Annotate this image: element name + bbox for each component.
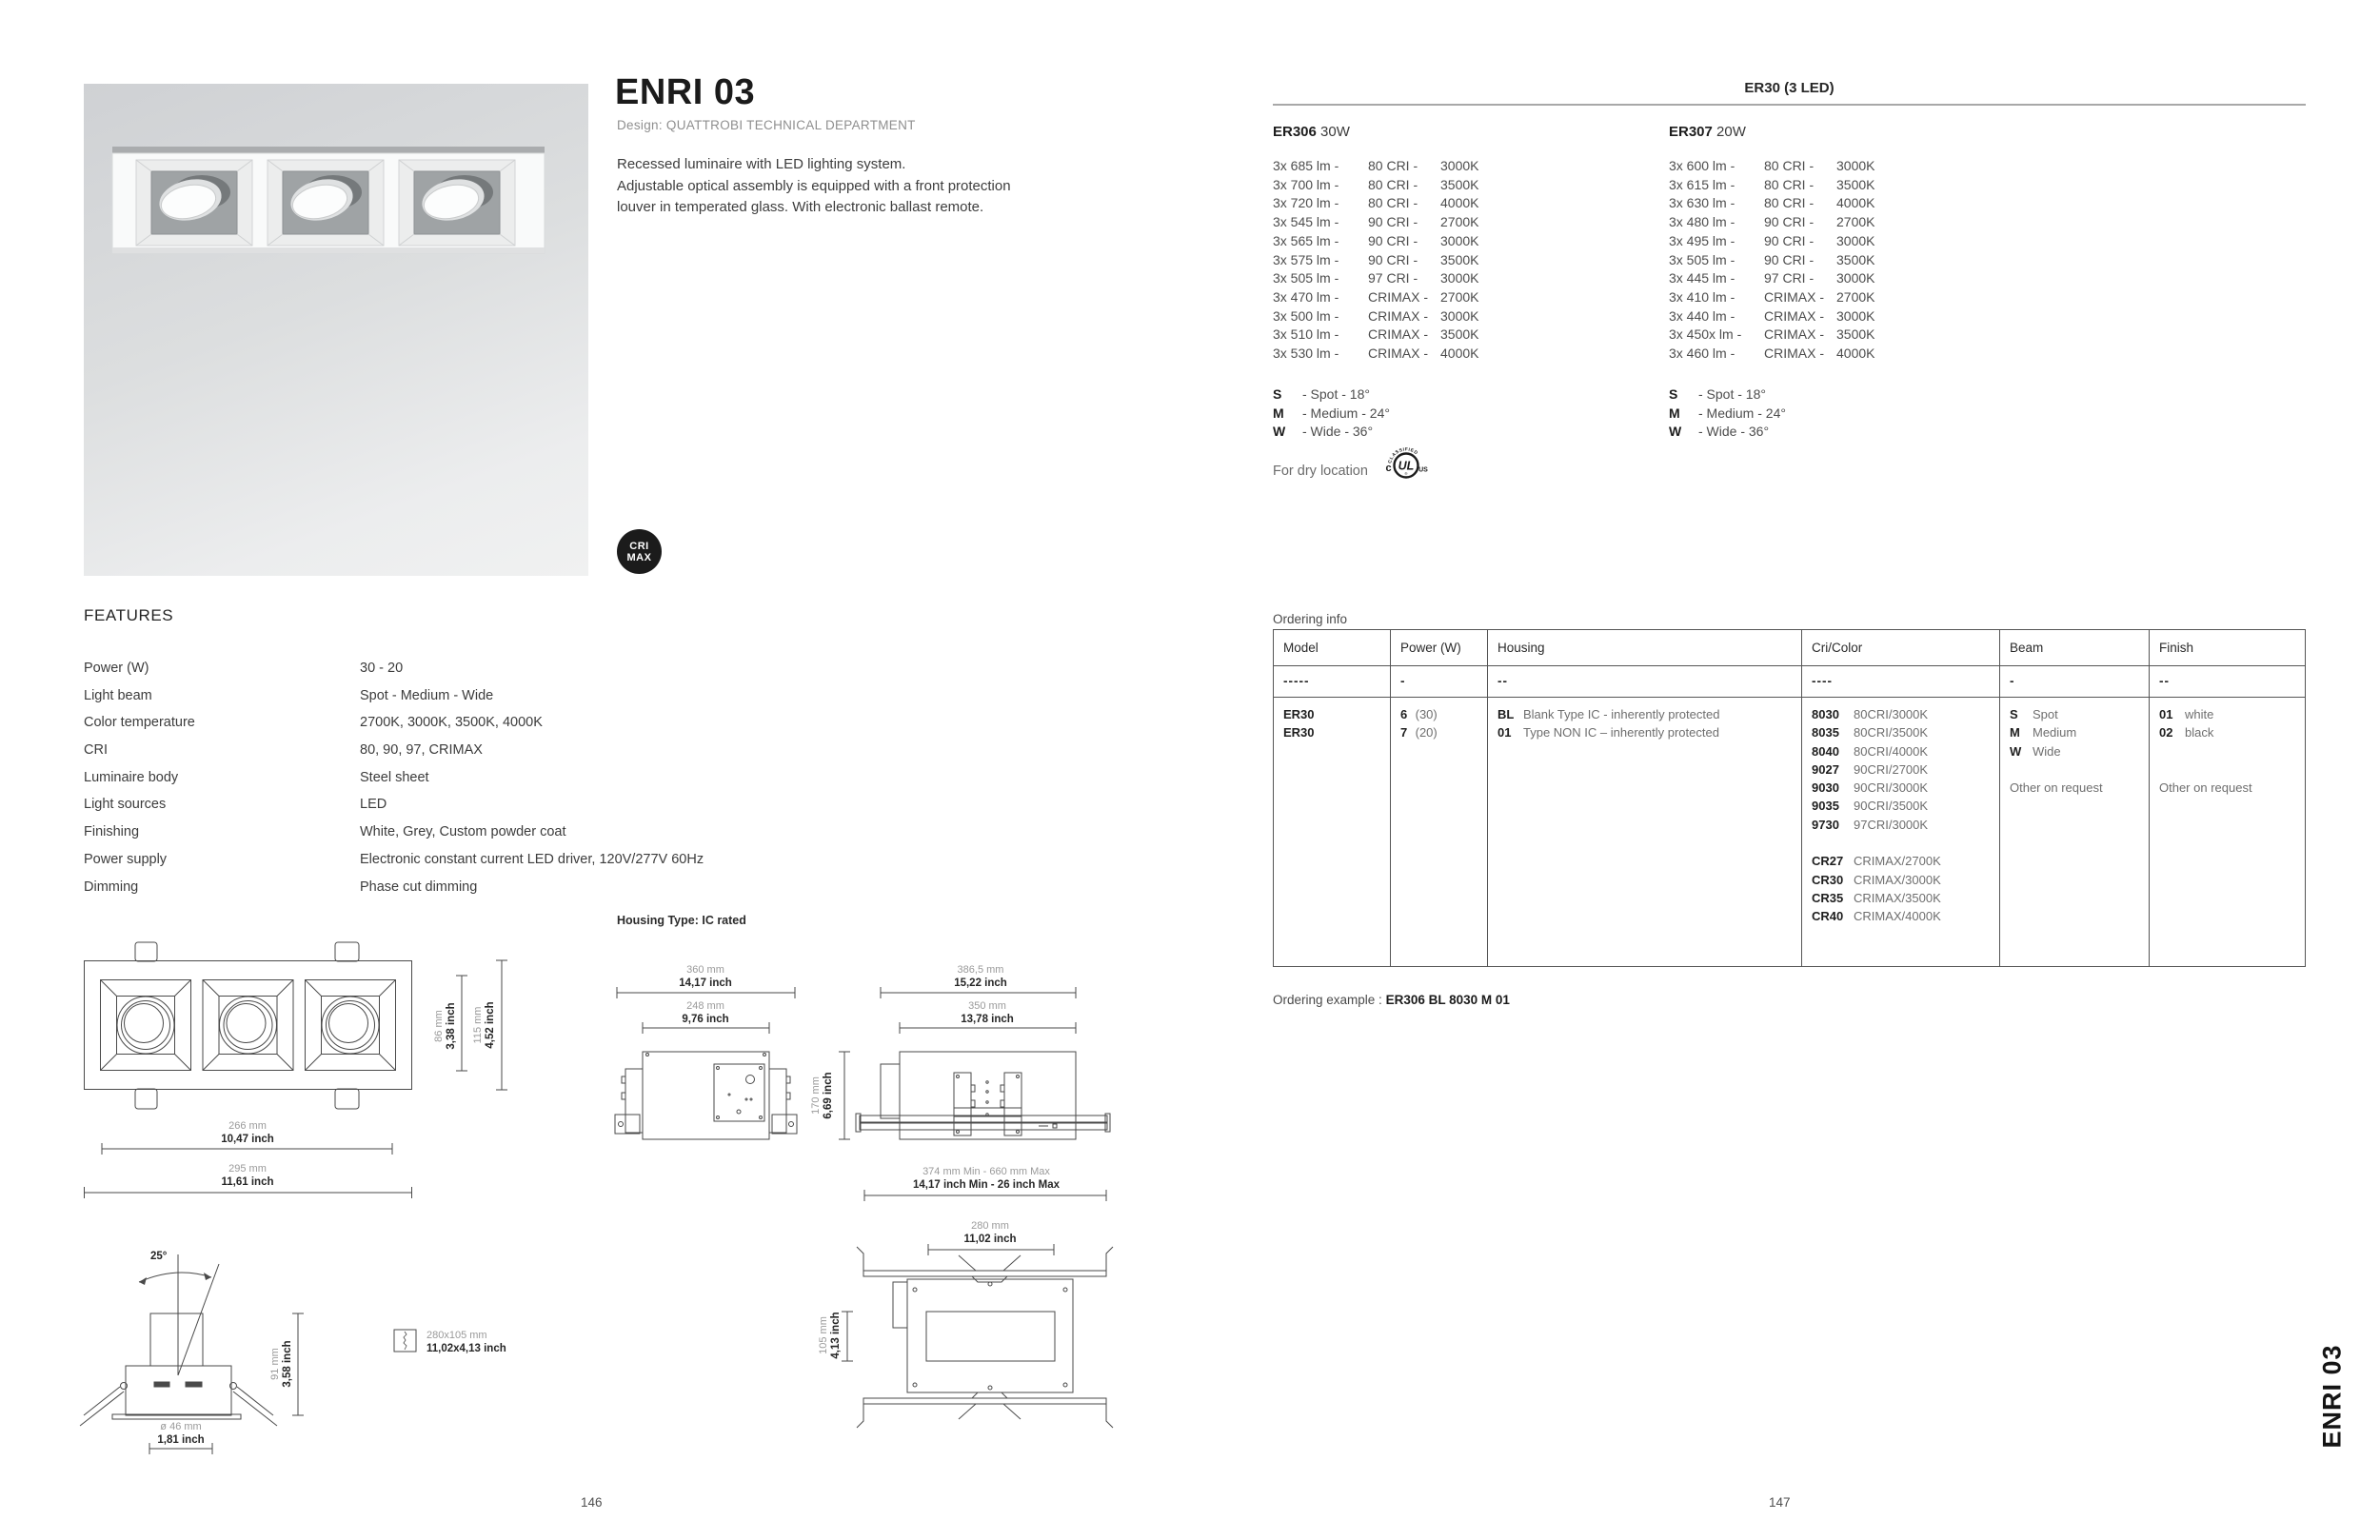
power-cell: 6 (30)7 (20) xyxy=(1391,698,1488,966)
finish-option: Other on request xyxy=(2159,780,2299,799)
output-row: 3x 495 lm - 90 CRI - 3000K xyxy=(1669,232,1874,251)
beam-key: M xyxy=(1669,405,1698,424)
output-row: 3x 685 lm - 80 CRI - 3000K xyxy=(1273,157,1478,176)
product-photo xyxy=(84,84,588,576)
cri-value: CRIMAX - xyxy=(1368,345,1440,364)
output-row: 3x 510 lm - CRIMAX - 3500K xyxy=(1273,326,1478,345)
cri-value: 80 CRI - xyxy=(1368,176,1440,195)
kelvin-value: 3000K xyxy=(1836,157,1874,176)
feature-value: 80, 90, 97, CRIMAX xyxy=(360,742,483,770)
feature-row: Power (W) 30 - 20 xyxy=(84,661,1017,688)
cri-value: CRIMAX - xyxy=(1764,307,1836,326)
finish-option: 01white xyxy=(2159,707,2299,725)
model-b-header: ER307 20W xyxy=(1669,124,1746,140)
kelvin-value: 2700K xyxy=(1440,288,1478,307)
bottom-view-drawing xyxy=(814,1214,1119,1437)
cri-value: 80 CRI - xyxy=(1764,176,1836,195)
kelvin-value: 3000K xyxy=(1440,232,1478,251)
kelvin-value: 3000K xyxy=(1440,269,1478,288)
ul-classified-icon: CLASSIFIED UL ® c US xyxy=(1382,440,1430,487)
housing-option: 01Type NON IC – inherently protected xyxy=(1497,725,1795,743)
model-a-power: 30W xyxy=(1317,124,1350,140)
lumen-value: 3x 700 lm - xyxy=(1273,176,1368,195)
cri-value: 90 CRI - xyxy=(1764,213,1836,232)
feature-value: LED xyxy=(360,797,387,824)
feature-label: Power (W) xyxy=(84,661,360,688)
power-option: 6 (30) xyxy=(1400,707,1481,725)
dim-86mm: 86 mm 3,38 inch xyxy=(433,1002,458,1049)
feature-value: White, Grey, Custom powder coat xyxy=(360,824,566,852)
model-b-code: ER307 xyxy=(1669,124,1713,140)
feature-row: Light beam Spot - Medium - Wide xyxy=(84,688,1017,716)
series-header: ER30 (3 LED) xyxy=(1273,80,2306,96)
kelvin-value: 4000K xyxy=(1836,345,1874,364)
description-line: Adjustable optical assembly is equipped … xyxy=(617,176,1011,198)
description-line: Recessed luminaire with LED lighting sys… xyxy=(617,154,1011,176)
beam-option: Other on request xyxy=(2010,780,2143,799)
kelvin-value: 3500K xyxy=(1440,326,1478,345)
page-number-right: 147 xyxy=(1769,1495,1791,1510)
lumen-value: 3x 505 lm - xyxy=(1669,251,1764,270)
beam-option: MMedium xyxy=(2010,725,2143,743)
output-row: 3x 630 lm - 80 CRI - 4000K xyxy=(1669,194,1874,213)
ordering-example: Ordering example : ER306 BL 8030 M 01 xyxy=(1273,993,1510,1007)
kelvin-value: 3500K xyxy=(1836,326,1874,345)
beam-row: S- Spot - 18° xyxy=(1669,385,1786,405)
description-line: louver in temperated glass. With electro… xyxy=(617,197,1011,219)
ordering-example-label: Ordering example : xyxy=(1273,993,1386,1007)
cricolor-option: 973097CRI/3000K xyxy=(1812,818,1993,836)
kelvin-value: 4000K xyxy=(1836,194,1874,213)
feature-row: Power supply Electronic constant current… xyxy=(84,852,1017,879)
col-header-beam: Beam xyxy=(2000,630,2150,666)
dim-248mm: 248 mm 9,76 inch xyxy=(682,999,728,1026)
feature-row: Light sources LED xyxy=(84,797,1017,824)
kelvin-value: 3000K xyxy=(1440,157,1478,176)
lumen-value: 3x 500 lm - xyxy=(1273,307,1368,326)
beam-row: M- Medium - 24° xyxy=(1273,405,1390,424)
housing-type-label: Housing Type: IC rated xyxy=(617,914,746,927)
section-view-drawing xyxy=(76,1237,343,1466)
lumen-value: 3x 510 lm - xyxy=(1273,326,1368,345)
lumen-value: 3x 460 lm - xyxy=(1669,345,1764,364)
output-row: 3x 530 lm - CRIMAX - 4000K xyxy=(1273,345,1478,364)
beam-desc: - Wide - 36° xyxy=(1302,424,1373,439)
lumen-value: 3x 450x lm - xyxy=(1669,326,1764,345)
dim-115mm: 115 mm 4,52 inch xyxy=(472,1001,497,1048)
feature-row: Color temperature 2700K, 3000K, 3500K, 4… xyxy=(84,715,1017,742)
kelvin-value: 2700K xyxy=(1836,288,1874,307)
model-a-header: ER306 30W xyxy=(1273,124,1350,140)
catalog-spread: ENRI 03 Design: QUATTROBI TECHNICAL DEPA… xyxy=(0,0,2380,1540)
ordering-table: Model Power (W) Housing Cri/Color Beam F… xyxy=(1273,629,2306,967)
output-row: 3x 410 lm - CRIMAX - 2700K xyxy=(1669,288,1874,307)
output-row: 3x 505 lm - 97 CRI - 3000K xyxy=(1273,269,1478,288)
lumen-value: 3x 720 lm - xyxy=(1273,194,1368,213)
feature-value: 30 - 20 xyxy=(360,661,403,688)
feature-value: Electronic constant current LED driver, … xyxy=(360,852,704,879)
dash-cell: ---- xyxy=(1802,666,2000,698)
header-rule xyxy=(1273,104,2306,106)
output-row: 3x 480 lm - 90 CRI - 2700K xyxy=(1669,213,1874,232)
cricolor-option: 803580CRI/3500K xyxy=(1812,725,1993,743)
finish-option: 02black xyxy=(2159,725,2299,743)
lumen-value: 3x 630 lm - xyxy=(1669,194,1764,213)
beam-desc: - Spot - 18° xyxy=(1698,386,1766,402)
features-list: Power (W) 30 - 20 Light beam Spot - Medi… xyxy=(84,661,1017,906)
product-description: Recessed luminaire with LED lighting sys… xyxy=(617,154,1011,219)
lumen-value: 3x 530 lm - xyxy=(1273,345,1368,364)
features-heading: FEATURES xyxy=(84,606,173,625)
feature-value: Phase cut dimming xyxy=(360,879,477,907)
finish-option xyxy=(2159,762,2299,780)
cutout-icon xyxy=(393,1329,418,1353)
ordering-info-label: Ordering info xyxy=(1273,612,1347,626)
side-tab-label: ENRI 03 xyxy=(2318,1344,2348,1448)
output-row: 3x 440 lm - CRIMAX - 3000K xyxy=(1669,307,1874,326)
design-credit: Design: QUATTROBI TECHNICAL DEPARTMENT xyxy=(617,118,916,132)
dry-location-note: For dry location xyxy=(1273,464,1368,479)
dim-telescopic-range: 374 mm Min - 660 mm Max 14,17 inch Min -… xyxy=(913,1165,1060,1192)
cricolor-option: 903090CRI/3000K xyxy=(1812,780,1993,799)
cri-value: 90 CRI - xyxy=(1368,251,1440,270)
output-row: 3x 700 lm - 80 CRI - 3500K xyxy=(1273,176,1478,195)
ordering-example-value: ER306 BL 8030 M 01 xyxy=(1386,993,1510,1007)
finish-option xyxy=(2159,744,2299,762)
dash-cell: ----- xyxy=(1274,666,1391,698)
output-row: 3x 470 lm - CRIMAX - 2700K xyxy=(1273,288,1478,307)
dim-360mm: 360 mm 14,17 inch xyxy=(679,963,732,990)
cricolor-option: 804080CRI/4000K xyxy=(1812,744,1993,762)
col-header-cricolor: Cri/Color xyxy=(1802,630,2000,666)
cri-value: CRIMAX - xyxy=(1368,307,1440,326)
beam-desc: - Medium - 24° xyxy=(1302,405,1390,421)
cri-value: CRIMAX - xyxy=(1764,345,1836,364)
cri-value: 90 CRI - xyxy=(1368,213,1440,232)
housing-option: BLBlank Type IC - inherently protected xyxy=(1497,707,1795,725)
housing-cell: BLBlank Type IC - inherently protected01… xyxy=(1488,698,1802,966)
dim-105mm: 105 mm 4,13 inch xyxy=(818,1312,843,1358)
svg-text:c: c xyxy=(1385,463,1391,474)
kelvin-value: 3000K xyxy=(1440,307,1478,326)
housing-top-drawing xyxy=(609,947,866,1152)
feature-label: Color temperature xyxy=(84,715,360,742)
dim-91mm: 91 mm 3,58 inch xyxy=(269,1340,294,1387)
lumen-value: 3x 445 lm - xyxy=(1669,269,1764,288)
kelvin-value: 3500K xyxy=(1836,251,1874,270)
lumen-value: 3x 615 lm - xyxy=(1669,176,1764,195)
cricolor-option: 902790CRI/2700K xyxy=(1812,762,1993,780)
beam-legend-b: S- Spot - 18° M- Medium - 24° W- Wide - … xyxy=(1669,385,1786,442)
svg-text:®: ® xyxy=(1405,471,1408,476)
lumen-value: 3x 440 lm - xyxy=(1669,307,1764,326)
feature-value: Spot - Medium - Wide xyxy=(360,688,493,716)
kelvin-value: 4000K xyxy=(1440,345,1478,364)
beam-row: S- Spot - 18° xyxy=(1273,385,1390,405)
beam-option: WWide xyxy=(2010,744,2143,762)
model-b-outputs: 3x 600 lm - 80 CRI - 3000K 3x 615 lm - 8… xyxy=(1669,157,1874,364)
beam-row: M- Medium - 24° xyxy=(1669,405,1786,424)
col-header-power: Power (W) xyxy=(1391,630,1488,666)
recessed-luminaire-image xyxy=(84,84,588,576)
dash-cell: - xyxy=(2000,666,2150,698)
dim-350mm: 350 mm 13,78 inch xyxy=(961,999,1014,1026)
kelvin-value: 2700K xyxy=(1836,213,1874,232)
lumen-value: 3x 480 lm - xyxy=(1669,213,1764,232)
cri-value: 90 CRI - xyxy=(1764,232,1836,251)
spot-cells xyxy=(136,160,515,246)
kelvin-value: 3000K xyxy=(1836,307,1874,326)
output-row: 3x 445 lm - 97 CRI - 3000K xyxy=(1669,269,1874,288)
kelvin-value: 3000K xyxy=(1836,232,1874,251)
col-header-housing: Housing xyxy=(1488,630,1802,666)
dim-266mm: 266 mm 10,47 inch xyxy=(221,1119,274,1146)
lumen-value: 3x 470 lm - xyxy=(1273,288,1368,307)
cri-value: CRIMAX - xyxy=(1368,326,1440,345)
beam-key: W xyxy=(1273,423,1302,442)
cri-value: 80 CRI - xyxy=(1368,194,1440,213)
model-option: ER30 xyxy=(1283,707,1384,725)
svg-text:US: US xyxy=(1418,467,1428,474)
kelvin-value: 2700K xyxy=(1440,213,1478,232)
tilt-angle-label: 25° xyxy=(150,1251,167,1262)
dash-cell: -- xyxy=(2150,666,2305,698)
feature-row: Luminaire body Steel sheet xyxy=(84,770,1017,798)
col-header-finish: Finish xyxy=(2150,630,2305,666)
beam-key: M xyxy=(1273,405,1302,424)
beam-desc: - Wide - 36° xyxy=(1698,424,1769,439)
beam-desc: - Medium - 24° xyxy=(1698,405,1786,421)
feature-row: Finishing White, Grey, Custom powder coa… xyxy=(84,824,1017,852)
kelvin-value: 4000K xyxy=(1440,194,1478,213)
output-row: 3x 600 lm - 80 CRI - 3000K xyxy=(1669,157,1874,176)
cricolor-option: 903590CRI/3500K xyxy=(1812,799,1993,817)
feature-label: Light beam xyxy=(84,688,360,716)
lumen-value: 3x 495 lm - xyxy=(1669,232,1764,251)
lumen-value: 3x 600 lm - xyxy=(1669,157,1764,176)
kelvin-value: 3500K xyxy=(1836,176,1874,195)
cricolor-option xyxy=(1812,836,1993,854)
plan-view-drawing xyxy=(84,938,522,1214)
cricolor-cell: 803080CRI/3000K803580CRI/3500K804080CRI/… xyxy=(1802,698,2000,966)
model-cell: ER30ER30 xyxy=(1274,698,1391,966)
output-row: 3x 545 lm - 90 CRI - 2700K xyxy=(1273,213,1478,232)
feature-label: Finishing xyxy=(84,824,360,852)
cri-value: 97 CRI - xyxy=(1368,269,1440,288)
model-option: ER30 xyxy=(1283,725,1384,743)
model-b-power: 20W xyxy=(1713,124,1746,140)
dim-cutout: 280x105 mm 11,02x4,13 inch xyxy=(426,1329,506,1355)
kelvin-value: 3500K xyxy=(1440,251,1478,270)
page-title: ENRI 03 xyxy=(615,72,755,113)
feature-label: Light sources xyxy=(84,797,360,824)
output-row: 3x 575 lm - 90 CRI - 3500K xyxy=(1273,251,1478,270)
model-a-outputs: 3x 685 lm - 80 CRI - 3000K 3x 700 lm - 8… xyxy=(1273,157,1478,364)
beam-key: S xyxy=(1669,385,1698,405)
cri-value: CRIMAX - xyxy=(1368,288,1440,307)
beam-option xyxy=(2010,762,2143,780)
cricolor-option: CR40CRIMAX/4000K xyxy=(1812,909,1993,927)
dim-46mm: ø 46 mm 1,81 inch xyxy=(157,1420,204,1447)
output-row: 3x 505 lm - 90 CRI - 3500K xyxy=(1669,251,1874,270)
beam-row: W- Wide - 36° xyxy=(1273,423,1390,442)
cri-value: 90 CRI - xyxy=(1368,232,1440,251)
dim-170mm: 170 mm 6,69 inch xyxy=(810,1072,835,1118)
feature-row: Dimming Phase cut dimming xyxy=(84,879,1017,907)
cri-value: 97 CRI - xyxy=(1764,269,1836,288)
feature-value: Steel sheet xyxy=(360,770,429,798)
kelvin-value: 3500K xyxy=(1440,176,1478,195)
cri-max-badge: CRI MAX xyxy=(617,529,662,574)
beam-key: W xyxy=(1669,423,1698,442)
lumen-value: 3x 505 lm - xyxy=(1273,269,1368,288)
dim-386mm: 386,5 mm 15,22 inch xyxy=(954,963,1007,990)
output-row: 3x 450x lm - CRIMAX - 3500K xyxy=(1669,326,1874,345)
cricolor-option: CR27CRIMAX/2700K xyxy=(1812,854,1993,872)
lumen-value: 3x 685 lm - xyxy=(1273,157,1368,176)
lumen-value: 3x 565 lm - xyxy=(1273,232,1368,251)
lumen-value: 3x 575 lm - xyxy=(1273,251,1368,270)
output-row: 3x 460 lm - CRIMAX - 4000K xyxy=(1669,345,1874,364)
page-number-left: 146 xyxy=(581,1495,603,1510)
feature-value: 2700K, 3000K, 3500K, 4000K xyxy=(360,715,543,742)
cri-value: 90 CRI - xyxy=(1764,251,1836,270)
model-a-code: ER306 xyxy=(1273,124,1317,140)
feature-label: Power supply xyxy=(84,852,360,879)
dash-cell: - xyxy=(1391,666,1488,698)
lumen-value: 3x 410 lm - xyxy=(1669,288,1764,307)
feature-label: Luminaire body xyxy=(84,770,360,798)
beam-row: W- Wide - 36° xyxy=(1669,423,1786,442)
lumen-value: 3x 545 lm - xyxy=(1273,213,1368,232)
beam-option: SSpot xyxy=(2010,707,2143,725)
output-row: 3x 500 lm - CRIMAX - 3000K xyxy=(1273,307,1478,326)
col-header-model: Model xyxy=(1274,630,1391,666)
kelvin-value: 3000K xyxy=(1836,269,1874,288)
output-row: 3x 565 lm - 90 CRI - 3000K xyxy=(1273,232,1478,251)
cricolor-option: CR30CRIMAX/3000K xyxy=(1812,873,1993,891)
cri-value: CRIMAX - xyxy=(1764,326,1836,345)
power-option: 7 (20) xyxy=(1400,725,1481,743)
beam-key: S xyxy=(1273,385,1302,405)
feature-label: Dimming xyxy=(84,879,360,907)
beam-cell: SSpotMMediumWWideOther on request xyxy=(2000,698,2150,966)
dim-280mm: 280 mm 11,02 inch xyxy=(964,1219,1017,1246)
cricolor-option: CR35CRIMAX/3500K xyxy=(1812,891,1993,909)
feature-row: CRI 80, 90, 97, CRIMAX xyxy=(84,742,1017,770)
finish-cell: 01white02blackOther on request xyxy=(2150,698,2305,966)
cri-value: 80 CRI - xyxy=(1368,157,1440,176)
feature-label: CRI xyxy=(84,742,360,770)
dim-295mm: 295 mm 11,61 inch xyxy=(222,1162,274,1189)
output-row: 3x 615 lm - 80 CRI - 3500K xyxy=(1669,176,1874,195)
cri-value: 80 CRI - xyxy=(1764,194,1836,213)
beam-desc: - Spot - 18° xyxy=(1302,386,1370,402)
cri-value: 80 CRI - xyxy=(1764,157,1836,176)
dash-cell: -- xyxy=(1488,666,1802,698)
cri-value: CRIMAX - xyxy=(1764,288,1836,307)
cricolor-option: 803080CRI/3000K xyxy=(1812,707,1993,725)
beam-legend-a: S- Spot - 18° M- Medium - 24° W- Wide - … xyxy=(1273,385,1390,442)
output-row: 3x 720 lm - 80 CRI - 4000K xyxy=(1273,194,1478,213)
